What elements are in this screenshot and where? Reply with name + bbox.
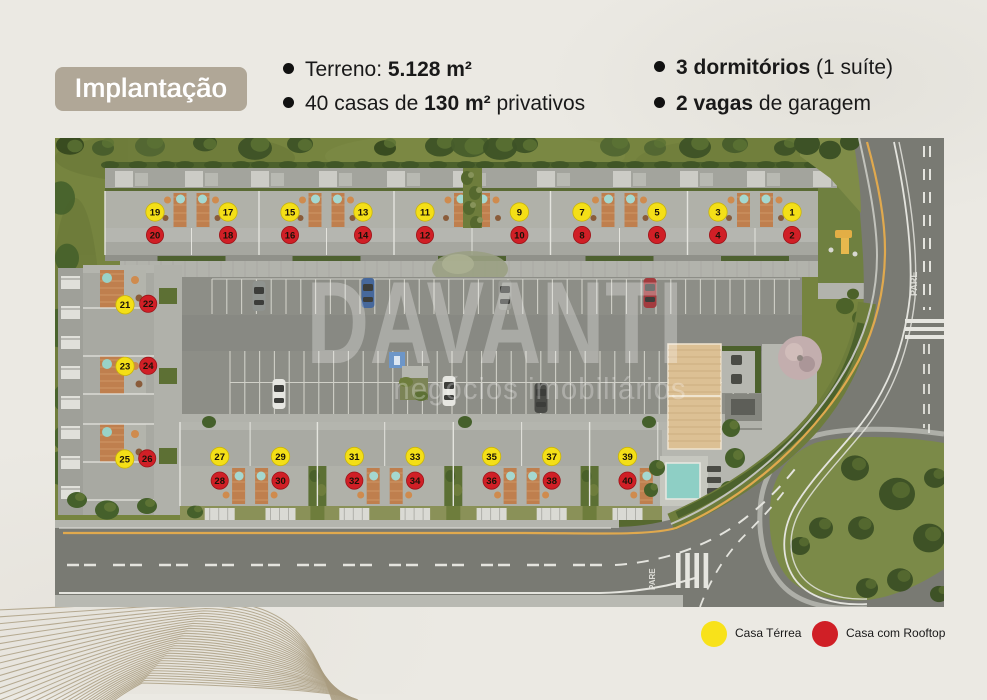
svg-text:6: 6 <box>654 230 659 241</box>
svg-text:9: 9 <box>517 207 522 218</box>
svg-text:DAVANTI: DAVANTI <box>306 257 683 388</box>
svg-text:33: 33 <box>410 452 421 463</box>
svg-text:8: 8 <box>579 230 584 241</box>
svg-text:37: 37 <box>546 452 557 463</box>
svg-text:39: 39 <box>622 452 633 463</box>
svg-text:23: 23 <box>120 362 131 373</box>
svg-text:34: 34 <box>410 476 421 487</box>
svg-text:7: 7 <box>579 207 584 218</box>
svg-text:26: 26 <box>142 454 153 465</box>
svg-text:15: 15 <box>285 207 296 218</box>
svg-text:19: 19 <box>150 207 161 218</box>
svg-text:17: 17 <box>223 207 234 218</box>
svg-text:28: 28 <box>214 476 225 487</box>
svg-text:22: 22 <box>143 299 154 310</box>
svg-text:2: 2 <box>789 230 794 241</box>
svg-text:12: 12 <box>420 230 431 241</box>
svg-text:negócios imobiliários: negócios imobiliários <box>393 372 686 406</box>
svg-text:1: 1 <box>789 207 795 218</box>
svg-text:31: 31 <box>349 452 360 463</box>
svg-text:24: 24 <box>143 361 154 372</box>
svg-text:20: 20 <box>150 230 161 241</box>
svg-text:35: 35 <box>486 452 497 463</box>
svg-text:30: 30 <box>275 476 286 487</box>
svg-text:38: 38 <box>546 476 557 487</box>
svg-text:16: 16 <box>285 230 296 241</box>
svg-text:4: 4 <box>715 230 721 241</box>
svg-text:40: 40 <box>622 476 633 487</box>
svg-text:3: 3 <box>715 207 720 218</box>
svg-text:36: 36 <box>486 476 497 487</box>
svg-text:18: 18 <box>223 230 234 241</box>
svg-text:PARE: PARE <box>909 272 919 296</box>
svg-text:14: 14 <box>358 230 369 241</box>
svg-text:21: 21 <box>120 300 131 311</box>
svg-text:32: 32 <box>349 476 360 487</box>
svg-text:29: 29 <box>275 452 286 463</box>
svg-text:13: 13 <box>358 207 369 218</box>
svg-text:11: 11 <box>420 207 431 218</box>
svg-text:5: 5 <box>654 207 660 218</box>
svg-text:PARE: PARE <box>648 568 657 590</box>
svg-text:27: 27 <box>214 452 225 463</box>
svg-text:25: 25 <box>119 454 130 465</box>
svg-text:10: 10 <box>514 230 525 241</box>
